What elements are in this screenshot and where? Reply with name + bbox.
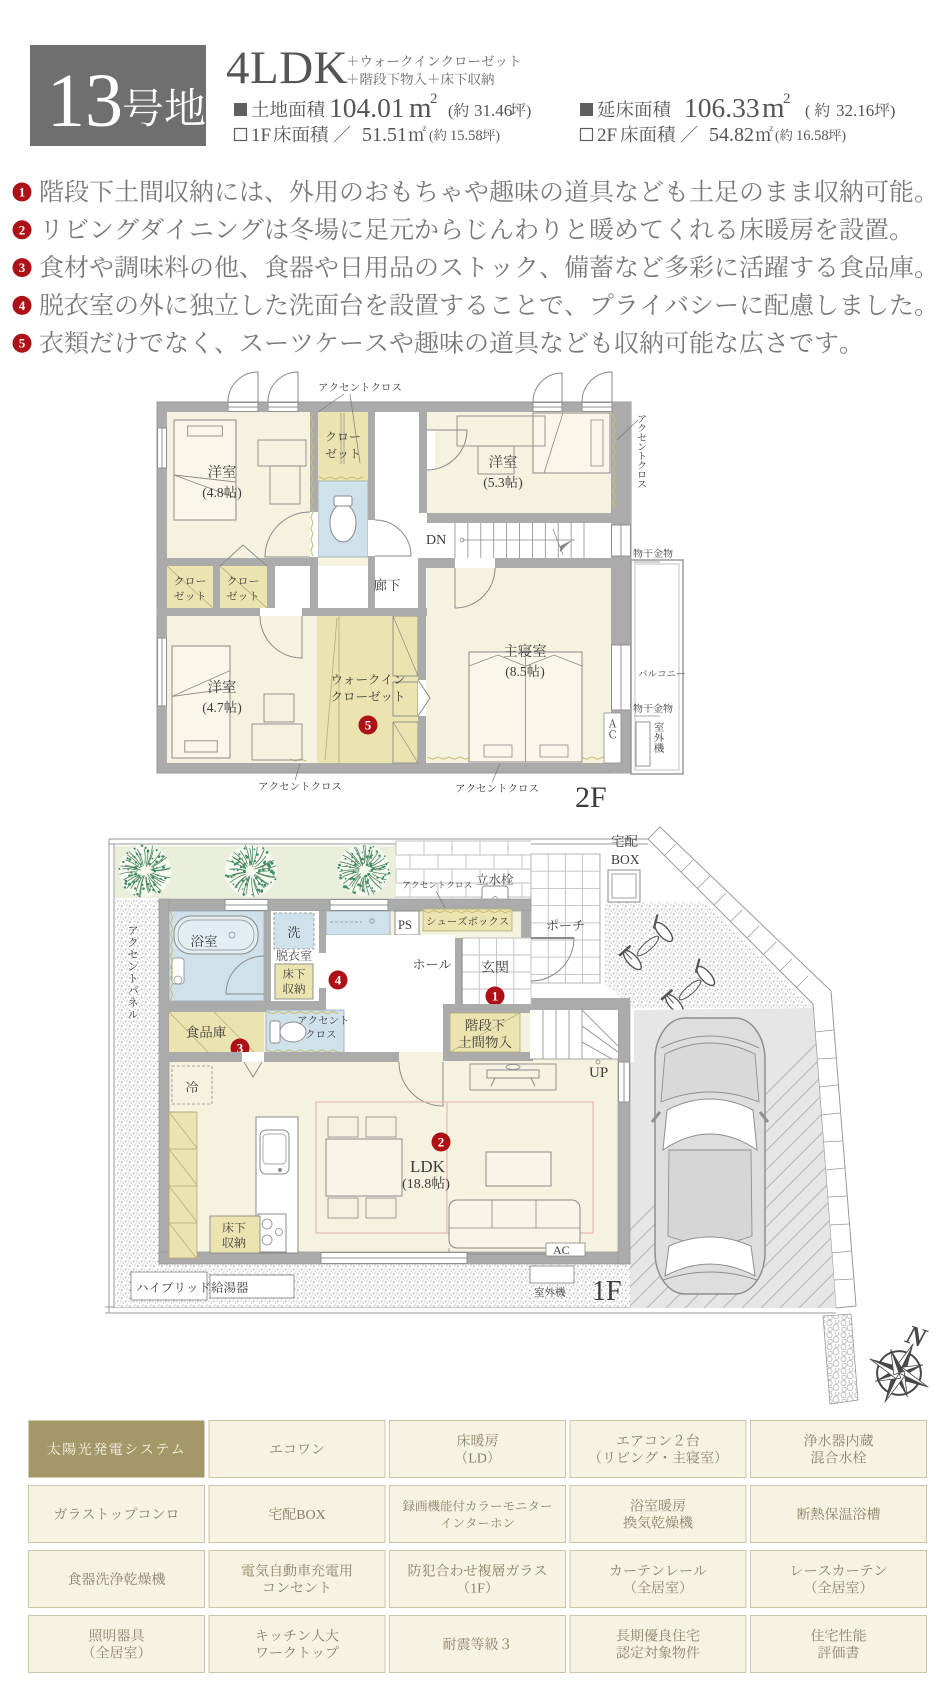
svg-text:2F: 2F [575, 781, 607, 814]
svg-text:2F: 2F [597, 125, 617, 146]
svg-text:1F: 1F [592, 1276, 622, 1307]
svg-text:54.82: 54.82 [709, 124, 754, 146]
svg-text:(8.5: (8.5 [505, 664, 527, 679]
svg-text:15.58: 15.58 [450, 128, 483, 144]
svg-text:1F: 1F [470, 1582, 485, 1597]
svg-text:16.58: 16.58 [796, 128, 829, 144]
svg-text:106.33: 106.33 [684, 92, 760, 123]
svg-text:): ) [445, 1177, 450, 1192]
svg-text:): ) [518, 475, 523, 490]
svg-text:): ) [890, 103, 895, 120]
svg-text:UP: UP [589, 1065, 608, 1081]
svg-text:2: 2 [19, 222, 26, 237]
svg-text:4LDK: 4LDK [226, 42, 348, 94]
svg-text:4: 4 [19, 298, 26, 313]
svg-text:): ) [496, 128, 501, 143]
svg-text:(5.3: (5.3 [483, 475, 505, 490]
svg-text:): ) [842, 128, 847, 143]
svg-text:BOX: BOX [296, 1508, 326, 1523]
svg-text:(4.8: (4.8 [202, 485, 224, 500]
svg-text:1: 1 [492, 988, 499, 1003]
svg-text:): ) [540, 664, 545, 679]
svg-text:PS: PS [398, 918, 412, 932]
svg-text:(: ( [429, 128, 434, 143]
svg-text:(: ( [775, 128, 780, 143]
svg-text:LDK: LDK [410, 1157, 446, 1176]
svg-text:(4.7: (4.7 [202, 700, 224, 715]
svg-text:2: 2 [438, 1134, 445, 1149]
svg-text:m: m [409, 92, 432, 124]
svg-text:): ) [237, 700, 242, 715]
svg-text:31.46: 31.46 [474, 101, 512, 120]
svg-text:2: 2 [430, 91, 438, 107]
svg-text:): ) [237, 485, 242, 500]
svg-text:AC: AC [553, 1243, 570, 1257]
svg-text:51.51: 51.51 [362, 124, 407, 146]
svg-text:(: ( [448, 103, 453, 120]
svg-text:LD: LD [468, 1452, 487, 1467]
svg-text:13: 13 [47, 59, 123, 143]
svg-text:5: 5 [19, 336, 26, 351]
svg-text:): ) [526, 103, 531, 120]
svg-text:DN: DN [426, 533, 446, 548]
svg-text:m: m [762, 92, 785, 124]
svg-text:2: 2 [783, 91, 791, 107]
svg-text:1F: 1F [251, 125, 271, 146]
svg-text:(18.8: (18.8 [402, 1177, 431, 1192]
svg-text:4: 4 [335, 972, 342, 987]
svg-text:1: 1 [19, 184, 26, 199]
svg-text:104.01: 104.01 [329, 92, 405, 123]
svg-text:32.16: 32.16 [836, 101, 874, 120]
svg-text:3: 3 [19, 260, 26, 275]
svg-text:BOX: BOX [611, 852, 640, 867]
svg-text:(: ( [805, 103, 810, 120]
svg-text:5: 5 [365, 717, 372, 732]
